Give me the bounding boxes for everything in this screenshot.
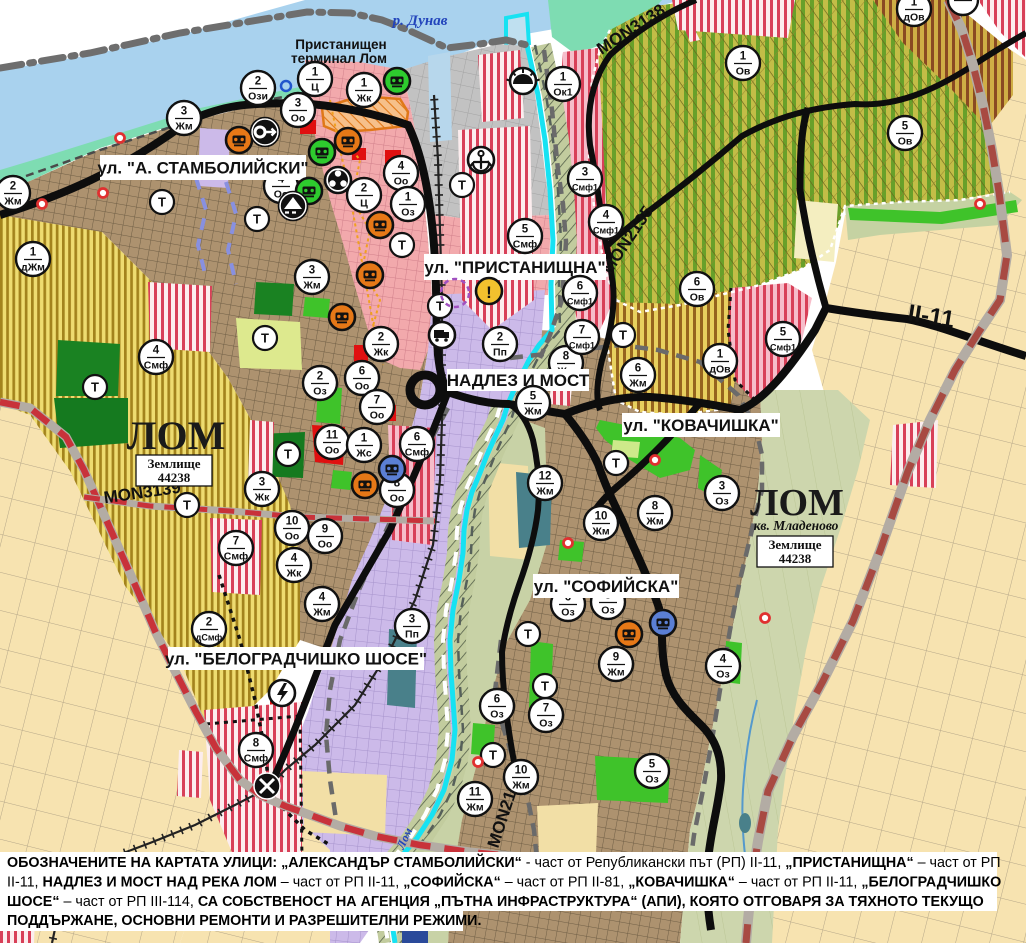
svg-text:1: 1	[911, 0, 918, 9]
svg-text:Пп: Пп	[493, 347, 507, 359]
svg-text:6: 6	[635, 363, 641, 375]
svg-text:Смф1: Смф1	[569, 341, 595, 351]
svg-text:4: 4	[153, 345, 160, 357]
svg-text:Т: Т	[261, 331, 269, 346]
svg-text:11: 11	[326, 430, 339, 442]
svg-text:Жм: Жм	[312, 607, 330, 619]
svg-text:Землище: Землище	[147, 456, 200, 471]
svg-text:Оз: Оз	[313, 386, 326, 398]
svg-text:5: 5	[649, 759, 656, 771]
svg-text:Т: Т	[612, 456, 620, 471]
svg-text:7: 7	[543, 703, 549, 715]
svg-text:7: 7	[233, 536, 239, 548]
svg-text:3: 3	[582, 167, 588, 179]
svg-text:II-11, НАДЛЕЗ И МОСТ НАД РЕКА: II-11, НАДЛЕЗ И МОСТ НАД РЕКА ЛОМ – част…	[7, 872, 1001, 890]
svg-text:Т: Т	[158, 195, 166, 210]
svg-text:Ози: Ози	[248, 91, 268, 103]
svg-text:1: 1	[361, 433, 368, 445]
svg-text:8: 8	[652, 501, 659, 513]
svg-text:8: 8	[563, 351, 570, 363]
svg-text:1: 1	[405, 192, 412, 204]
svg-text:ул. "БЕЛОГРАДЧИШКО ШОСЕ": ул. "БЕЛОГРАДЧИШКО ШОСЕ"	[165, 650, 427, 669]
svg-text:7: 7	[374, 395, 380, 407]
svg-text:4: 4	[720, 654, 727, 666]
svg-text:44238: 44238	[158, 470, 191, 485]
svg-text:Жм: Жм	[591, 526, 609, 538]
svg-text:2: 2	[10, 181, 16, 193]
svg-text:Смф: Смф	[224, 551, 248, 563]
svg-text:4: 4	[398, 161, 405, 173]
svg-text:Смф: Смф	[244, 753, 268, 765]
svg-text:Жк: Жк	[286, 568, 302, 580]
svg-text:44238: 44238	[779, 551, 812, 566]
svg-text:Жк: Жк	[254, 492, 270, 504]
svg-text:3: 3	[719, 481, 725, 493]
svg-text:ЛОМ: ЛОМ	[127, 413, 226, 458]
svg-text:11: 11	[469, 787, 482, 799]
svg-text:ул. "КОВАЧИШКА": ул. "КОВАЧИШКА"	[623, 416, 779, 435]
svg-text:12: 12	[539, 471, 552, 483]
svg-text:ШОСЕ“ – част от РП III-114, СА: ШОСЕ“ – част от РП III-114, СА СОБСТВЕНО…	[7, 894, 984, 910]
svg-text:Оо: Оо	[370, 410, 385, 422]
svg-text:Жм: Жм	[628, 378, 646, 390]
svg-text:Пристанищен: Пристанищен	[295, 37, 386, 52]
svg-text:6: 6	[414, 432, 420, 444]
svg-text:10: 10	[515, 765, 528, 777]
svg-text:ул. "А. СТАМБОЛИЙСКИ": ул. "А. СТАМБОЛИЙСКИ"	[97, 159, 308, 178]
svg-text:Жм: Жм	[511, 780, 529, 792]
svg-text:Т: Т	[436, 299, 444, 314]
svg-text:2: 2	[206, 617, 212, 629]
svg-text:3: 3	[181, 106, 187, 118]
svg-text:Ов: Ов	[690, 292, 705, 304]
svg-text:Жм: Жм	[302, 280, 320, 292]
svg-text:Смф: Смф	[144, 360, 168, 372]
svg-text:5: 5	[522, 224, 529, 236]
svg-text:ПОДДЪРЖАНЕ, ОСНОВНИ РЕМОНТИ И: ПОДДЪРЖАНЕ, ОСНОВНИ РЕМОНТИ И РАЗРЕШИТЕЛ…	[7, 913, 481, 929]
svg-text:Оо: Оо	[325, 445, 340, 457]
svg-text:3: 3	[295, 98, 301, 110]
svg-text:Т: Т	[458, 178, 466, 193]
svg-text:4: 4	[603, 210, 610, 222]
svg-text:Оз: Оз	[601, 605, 614, 617]
svg-text:Ц: Ц	[311, 82, 319, 94]
svg-text:дСмф: дСмф	[196, 633, 223, 643]
svg-text:Оо: Оо	[291, 113, 306, 125]
svg-text:3: 3	[409, 614, 415, 626]
svg-text:10: 10	[286, 516, 299, 528]
svg-text:Оо: Оо	[318, 539, 333, 551]
svg-text:1: 1	[740, 51, 747, 63]
svg-text:Жк: Жк	[356, 93, 372, 105]
svg-text:1: 1	[717, 349, 724, 361]
svg-text:Жм: Жм	[174, 121, 192, 133]
svg-text:ул. "ПРИСТАНИЩНА": ул. "ПРИСТАНИЩНА"	[424, 258, 605, 277]
svg-text:р. Дунав: р. Дунав	[391, 13, 448, 29]
svg-text:1: 1	[312, 67, 319, 79]
svg-text:6: 6	[577, 281, 583, 293]
svg-text:Т: Т	[253, 212, 261, 227]
svg-text:ул. "СОФИЙСКА": ул. "СОФИЙСКА"	[534, 577, 679, 596]
svg-text:Ов: Ов	[898, 136, 913, 148]
svg-text:Ок1: Ок1	[553, 87, 572, 99]
svg-text:7: 7	[579, 325, 585, 337]
svg-text:6: 6	[359, 366, 365, 378]
svg-text:Т: Т	[91, 380, 99, 395]
svg-text:10: 10	[595, 511, 608, 523]
svg-text:Оз: Оз	[715, 496, 728, 508]
svg-text:6: 6	[494, 694, 500, 706]
svg-text:Оз: Оз	[645, 774, 658, 786]
svg-text:Т: Т	[541, 679, 549, 694]
svg-text:Оо: Оо	[355, 381, 370, 393]
svg-text:Т: Т	[524, 627, 532, 642]
svg-text:Оз: Оз	[401, 207, 414, 219]
svg-text:2: 2	[497, 332, 503, 344]
svg-text:1: 1	[560, 72, 567, 84]
svg-text:5: 5	[902, 121, 909, 133]
svg-text:3: 3	[309, 265, 315, 277]
svg-text:дОв: дОв	[903, 12, 925, 24]
svg-text:Жс: Жс	[355, 448, 371, 460]
svg-text:Жм: Жм	[606, 667, 624, 679]
svg-text:Смф: Смф	[513, 239, 537, 251]
svg-text:Смф1: Смф1	[572, 183, 598, 193]
svg-text:1: 1	[30, 247, 37, 259]
svg-text:Землище: Землище	[768, 537, 821, 552]
svg-text:Оз: Оз	[716, 669, 729, 681]
svg-text:Т: Т	[489, 748, 497, 763]
svg-text:Т: Т	[183, 498, 191, 513]
svg-text:Пп: Пп	[405, 629, 419, 641]
svg-text:2: 2	[255, 76, 261, 88]
svg-text:Жм: Жм	[3, 196, 21, 208]
svg-text:2: 2	[317, 371, 323, 383]
svg-text:6: 6	[694, 277, 700, 289]
svg-text:Т: Т	[398, 238, 406, 253]
svg-text:!: !	[486, 283, 492, 302]
svg-text:3: 3	[259, 477, 265, 489]
svg-text:2: 2	[378, 332, 384, 344]
svg-text:4: 4	[291, 553, 298, 565]
svg-text:8: 8	[253, 738, 260, 750]
svg-text:Ц: Ц	[360, 198, 368, 210]
svg-text:Смф1: Смф1	[567, 297, 593, 307]
svg-text:Оз: Оз	[490, 709, 503, 721]
svg-text:9: 9	[613, 652, 619, 664]
svg-text:4: 4	[319, 592, 326, 604]
svg-text:Жм: Жм	[465, 802, 483, 814]
svg-text:Т: Т	[284, 447, 292, 462]
svg-text:Смф1: Смф1	[593, 226, 619, 236]
svg-text:ОБОЗНАЧЕНИТЕ НА КАРТАТА УЛИЦИ:: ОБОЗНАЧЕНИТЕ НА КАРТАТА УЛИЦИ: „АЛЕКСАНД…	[7, 853, 1001, 871]
svg-text:дЖм: дЖм	[21, 262, 45, 274]
svg-text:Ов: Ов	[736, 66, 751, 78]
svg-text:дОв: дОв	[709, 364, 731, 376]
svg-text:кв. Младеново: кв. Младеново	[754, 518, 839, 533]
svg-text:Смф: Смф	[405, 447, 429, 459]
svg-text:Жм: Жм	[645, 516, 663, 528]
svg-text:5: 5	[530, 391, 537, 403]
svg-text:Оз: Оз	[539, 718, 552, 730]
svg-text:1: 1	[361, 78, 368, 90]
svg-text:Оо: Оо	[390, 493, 405, 505]
svg-text:5: 5	[780, 327, 787, 339]
svg-text:Оо: Оо	[285, 531, 300, 543]
svg-text:Жк: Жк	[373, 347, 389, 359]
svg-text:Смф1: Смф1	[770, 343, 796, 353]
svg-text:Жм: Жм	[535, 486, 553, 498]
svg-text:Жм: Жм	[523, 406, 541, 418]
svg-text:2: 2	[361, 183, 367, 195]
svg-text:Т: Т	[619, 328, 627, 343]
svg-text:9: 9	[322, 524, 328, 536]
svg-text:Оо: Оо	[394, 176, 409, 188]
svg-text:Оз: Оз	[561, 607, 574, 619]
svg-text:НАДЛЕЗ И МОСТ: НАДЛЕЗ И МОСТ	[447, 371, 590, 390]
